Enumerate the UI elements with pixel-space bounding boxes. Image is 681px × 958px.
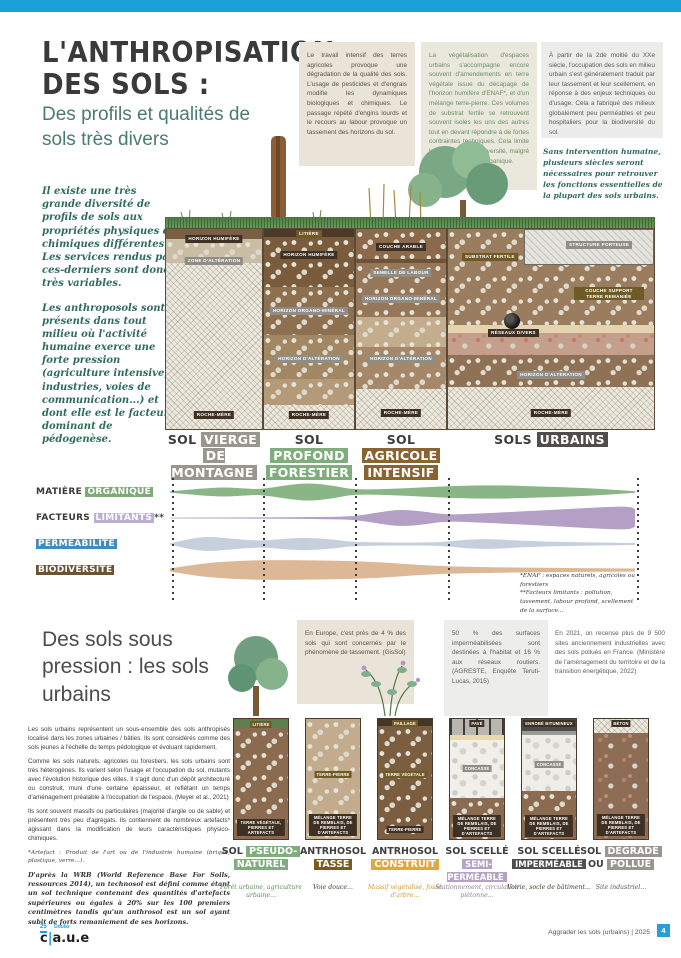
- urban-tree: [228, 636, 288, 716]
- matrix-label-facteurs-limitants: FACTEURS LIMITANTS**: [36, 513, 164, 523]
- layer-label: TERRE-PIERRE: [387, 826, 424, 833]
- layer-label: TERRE-PIERRE: [315, 771, 352, 778]
- layer-label: HORIZON HUMIFÈRE: [185, 235, 242, 243]
- layer-label: STRUCTURE PORTEUSE: [566, 241, 632, 249]
- soil-column-urbain: SUBSTRAT FERTILE STRUCTURE PORTEUSE COUC…: [447, 228, 655, 430]
- layer-label: HORIZON ORGANO-MINÉRAL: [362, 295, 440, 303]
- layer-label: ZONE D'ALTÉRATION: [185, 257, 243, 265]
- soil-column-forestier: LITIÈRE HORIZON HUMIFÈRE HORIZON ORGANO-…: [263, 228, 355, 430]
- layer-label: HORIZON HUMIFÈRE: [280, 251, 337, 259]
- urban-vegetation-illustration: [0, 630, 681, 718]
- urban-column-pseudo-naturel: LITIÈRE TERRE VÉGÉTALE, PIERRES ET ARTEF…: [233, 718, 289, 840]
- soil-title-agricole: SOL AGRICOLE INTENSIF: [355, 432, 447, 481]
- violin-facteurs-limitants: [170, 505, 640, 531]
- intro-text: Il existe une très grande diversité de p…: [42, 185, 174, 458]
- soil-title-urbains: SOLS URBAINS: [447, 432, 655, 448]
- layer-label: COUCHE SUPPORT TERRE REMANIÉE: [574, 287, 644, 300]
- layer-label: MÉLANGE TERRE DE REMBLAIS, DE PIERRES ET…: [309, 814, 357, 836]
- column-divider-dotted: [263, 478, 265, 600]
- layer-label: HORIZON D'ALTÉRATION: [367, 355, 435, 363]
- layer-label: CONCASSÉ: [463, 765, 492, 772]
- matrix-footnotes: *ENAF : espaces naturels, agricoles ou f…: [520, 572, 638, 615]
- page-number-badge: 4: [657, 924, 670, 937]
- layer-label: RÉSEAUX DIVERS: [488, 329, 539, 337]
- poster-page: L'ANTHROPISATION DES SOLS : Des profils …: [0, 0, 681, 958]
- matrix-label-biodiversite: BIODIVERSITÉ: [36, 565, 114, 575]
- page-title-line2: DES SOLS :: [42, 70, 335, 102]
- layer-label: MÉLANGE TERRE DE REMBLAIS, DE PIERRES ET…: [525, 815, 573, 837]
- layer-label: PAVÉ: [469, 720, 484, 727]
- tree-canopy: [408, 141, 508, 222]
- page-title-line1: L'ANTHROPISATION: [42, 38, 335, 70]
- layer-label: ROCHE-MÈRE: [381, 409, 421, 417]
- top-accent-bar: [0, 0, 681, 12]
- vegetation-illustration: [165, 130, 655, 228]
- layer-label: SEMELLE DE LABOUR: [370, 269, 431, 277]
- intro-paragraph-1: Il existe une très grande diversité de p…: [42, 185, 174, 291]
- layer-label: ENROBÉ BITUMINEUX: [523, 720, 575, 727]
- soil-title-forestier: SOL PROFOND FORESTIER: [263, 432, 355, 481]
- layer-label: LITIÈRE: [296, 230, 322, 238]
- soil-profiles-figure: HORIZON HUMIFÈRE ZONE D'ALTÉRATION ROCHE…: [165, 130, 657, 470]
- page-title: L'ANTHROPISATION DES SOLS :: [42, 38, 335, 103]
- soil-column-montagne: HORIZON HUMIFÈRE ZONE D'ALTÉRATION ROCHE…: [165, 228, 263, 430]
- soil-column-agricole: COUCHE ARABLE SEMELLE DE LABOUR HORIZON …: [355, 228, 447, 430]
- layer-label: ROCHE-MÈRE: [194, 411, 234, 419]
- layer-label: PAILLAGE: [392, 720, 418, 727]
- layer-label: TERRE VÉGÉTALE: [383, 771, 427, 778]
- dept-name: Doubs: [54, 924, 70, 930]
- urban-soils-figure: LITIÈRE TERRE VÉGÉTALE, PIERRES ET ARTEF…: [0, 630, 681, 930]
- plant-flowers: [362, 661, 421, 683]
- layer-label: HORIZON ORGANO-MINÉRAL: [270, 307, 348, 315]
- layer-label: CONCASSÉ: [535, 761, 564, 768]
- violin-matiere-organique: [170, 479, 640, 505]
- layer-label: BÉTON: [611, 720, 630, 727]
- layer-label: HORIZON D'ALTÉRATION: [275, 355, 343, 363]
- urban-caption: Site industriel...: [578, 884, 664, 892]
- layer-label: SUBSTRAT FERTILE: [462, 253, 518, 261]
- layer-label: MÉLANGE TERRE DE REMBLAIS, DE PIERRES ET…: [597, 814, 645, 836]
- layer-label: COUCHE ARABLE: [376, 243, 426, 251]
- column-divider-dotted: [172, 478, 174, 600]
- intro-paragraph-2: Les anthroposols sont présents dans tout…: [42, 302, 174, 447]
- column-divider-dotted: [355, 478, 357, 600]
- urban-column-construit: PAILLAGE TERRE VÉGÉTALE TERRE-PIERRE: [377, 718, 433, 840]
- violin-permeabilite: [170, 531, 640, 557]
- infobox-xxe-siecle: À partir de la 2de moitié du XXe siècle,…: [541, 42, 663, 138]
- soil-title-montagne: SOL VIERGE DE MONTAGNE: [165, 432, 263, 481]
- layer-label: MÉLANGE TERRE DE REMBLAIS, DE PIERRES ET…: [453, 815, 501, 837]
- urban-column-semi-permeable: PAVÉ CONCASSÉ MÉLANGE TERRE DE REMBLAIS,…: [449, 718, 505, 840]
- urban-column-degrade-pollue: BÉTON MÉLANGE TERRE DE REMBLAIS, DE PIER…: [593, 718, 649, 840]
- matrix-label-matiere-organique: MATIÈRE ORGANIQUE: [36, 487, 153, 497]
- layer-label: TERRE VÉGÉTALE, PIERRES ET ARTEFACTS: [237, 819, 285, 836]
- pipe-icon: [504, 313, 520, 329]
- urban-title-degrade-pollue: SOL DÉGRADÉ OU POLLUÉ: [578, 846, 664, 872]
- column-divider-dotted: [448, 478, 450, 600]
- layer-label: LITIÈRE: [250, 721, 271, 728]
- layer-label: ROCHE-MÈRE: [531, 409, 571, 417]
- plant-leaves: [361, 667, 417, 695]
- urban-column-tasse: TERRE-PIERRE MÉLANGE TERRE DE REMBLAIS, …: [305, 718, 361, 840]
- layer-label: HORIZON D'ALTÉRATION: [517, 371, 585, 379]
- urban-column-impermeable: ENROBÉ BITUMINEUX CONCASSÉ MÉLANGE TERRE…: [521, 718, 577, 840]
- matrix-label-permeabilite: PERMÉABILITÉ: [36, 539, 117, 549]
- document-title-footer: Aggrader les sols (urbains) | 2025: [470, 929, 650, 936]
- layer-label: ROCHE-MÈRE: [289, 411, 329, 419]
- caue-logo: 25 Doubs c|a.u.e: [40, 916, 89, 947]
